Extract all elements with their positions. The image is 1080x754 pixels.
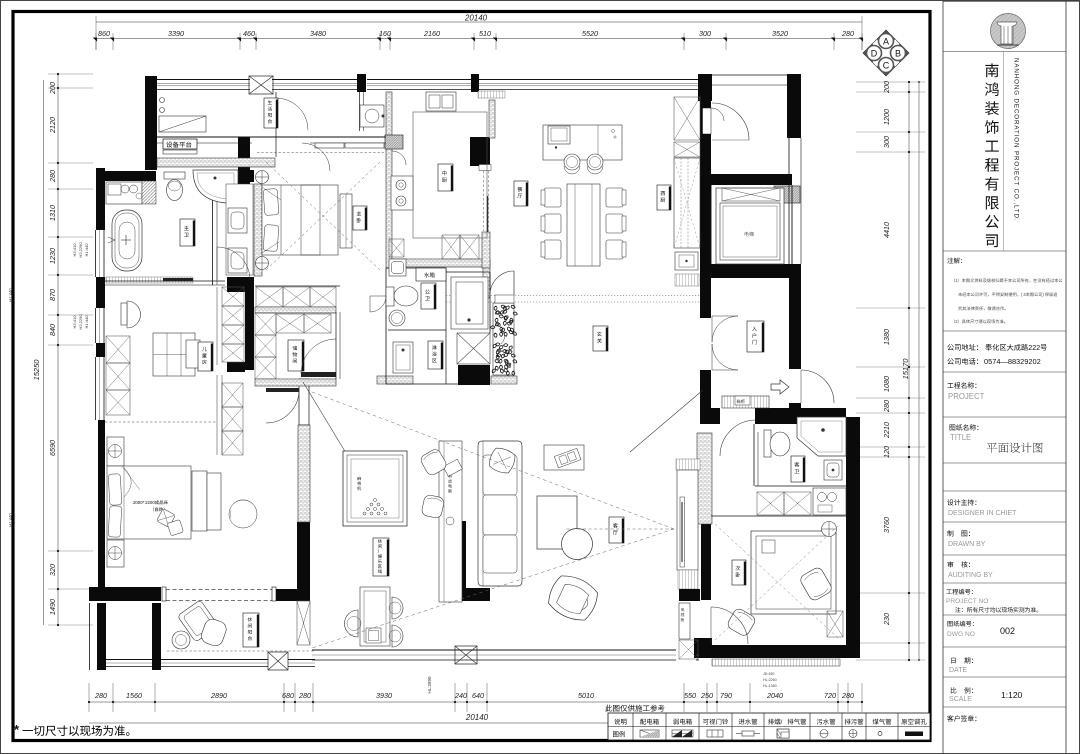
svg-text:160: 160	[379, 29, 391, 38]
svg-text:002: 002	[1000, 626, 1015, 636]
svg-text:680: 680	[282, 691, 294, 700]
svg-text:1310: 1310	[48, 205, 57, 221]
svg-text:D: D	[871, 48, 878, 58]
svg-text:TITLE: TITLE	[950, 433, 971, 442]
svg-text:H1:440: H1:440	[8, 288, 13, 302]
svg-text:HL:2890: HL:2890	[427, 676, 432, 694]
svg-text:H1:440: H1:440	[84, 243, 89, 257]
svg-text:1380: 1380	[882, 329, 891, 345]
svg-text:DRAWN BY: DRAWN BY	[948, 541, 986, 548]
svg-text:1080: 1080	[882, 376, 891, 392]
svg-text:1:120: 1:120	[1001, 690, 1023, 700]
svg-text:B: B	[895, 48, 901, 58]
svg-text:5520: 5520	[582, 29, 598, 38]
svg-text:280: 280	[841, 29, 854, 38]
svg-text:15170: 15170	[901, 358, 910, 380]
svg-text:550: 550	[684, 691, 696, 700]
svg-text:6590: 6590	[48, 440, 57, 456]
svg-text:1490: 1490	[48, 599, 57, 615]
svg-text:280: 280	[298, 691, 311, 700]
svg-text:0574—88329202: 0574—88329202	[984, 357, 1041, 366]
svg-text:3480: 3480	[310, 29, 326, 38]
svg-text:2160: 2160	[423, 29, 440, 38]
svg-text:720: 720	[824, 691, 836, 700]
svg-text:1230: 1230	[48, 248, 57, 264]
svg-text:3520: 3520	[772, 29, 788, 38]
svg-text:230: 230	[882, 613, 891, 626]
svg-text:2120: 2120	[48, 117, 57, 134]
svg-text:HL:1360: HL:1360	[763, 684, 777, 688]
svg-text:460: 460	[243, 29, 255, 38]
svg-text:4410: 4410	[882, 222, 891, 238]
svg-text:H1:440: H1:440	[8, 513, 13, 527]
svg-text:DESIGNER IN CHIET: DESIGNER IN CHIET	[948, 510, 1017, 517]
svg-text:3930: 3930	[376, 691, 392, 700]
svg-text:2890: 2890	[210, 691, 227, 700]
svg-text:280: 280	[841, 691, 854, 700]
svg-text:120: 120	[882, 446, 891, 458]
svg-text:PROJECT: PROJECT	[948, 392, 985, 401]
svg-text:840: 840	[48, 324, 57, 336]
svg-text:A: A	[883, 36, 889, 46]
svg-text:15250: 15250	[32, 359, 41, 381]
svg-text:870: 870	[48, 289, 57, 301]
svg-text:AUDITING BY: AUDITING BY	[948, 572, 993, 579]
svg-text:280: 280	[48, 170, 57, 183]
svg-text:790: 790	[720, 691, 732, 700]
svg-text:20140: 20140	[464, 14, 488, 23]
svg-text:1560: 1560	[126, 691, 142, 700]
svg-text:H3:410: H3:410	[72, 315, 77, 329]
svg-text:H2:2290: H2:2290	[78, 314, 83, 330]
svg-text:510: 510	[479, 29, 491, 38]
svg-text:H2:2290: H2:2290	[78, 242, 83, 258]
svg-text:JD:450: JD:450	[763, 672, 774, 676]
svg-text:DATE: DATE	[949, 667, 967, 674]
svg-text:860: 860	[98, 29, 110, 38]
svg-text:5010: 5010	[578, 691, 594, 700]
svg-text:20140: 20140	[465, 713, 489, 722]
svg-text:200: 200	[48, 82, 57, 95]
svg-text:240: 240	[454, 691, 467, 700]
svg-text:250: 250	[700, 691, 713, 700]
svg-text:280: 280	[882, 400, 891, 413]
svg-text:H1:440: H1:440	[84, 315, 89, 329]
svg-text:280: 280	[94, 691, 107, 700]
svg-text:NANHONG DECORATION PROJECT CO.: NANHONG DECORATION PROJECT CO.,LTD.	[1013, 58, 1020, 222]
svg-text:2040: 2040	[766, 691, 783, 700]
svg-text:200: 200	[882, 81, 891, 94]
svg-text:3390: 3390	[168, 29, 184, 38]
svg-text:/: /	[781, 719, 783, 726]
svg-text:300: 300	[699, 29, 711, 38]
svg-text:PROJECT NO: PROJECT NO	[946, 598, 988, 605]
svg-text:3760: 3760	[882, 517, 891, 533]
svg-text:C: C	[883, 60, 890, 70]
svg-text:640: 640	[472, 691, 484, 700]
svg-text:HL:2260: HL:2260	[763, 678, 777, 682]
svg-text:300: 300	[882, 136, 891, 148]
svg-text:DWG NO: DWG NO	[947, 631, 975, 638]
svg-text:1200: 1200	[882, 109, 891, 125]
svg-text:SCALE: SCALE	[949, 696, 972, 703]
svg-text:H3:410: H3:410	[72, 243, 77, 257]
svg-text:2: 2	[1036, 343, 1040, 352]
svg-text:2210: 2210	[882, 422, 891, 439]
svg-text:320: 320	[48, 564, 57, 576]
